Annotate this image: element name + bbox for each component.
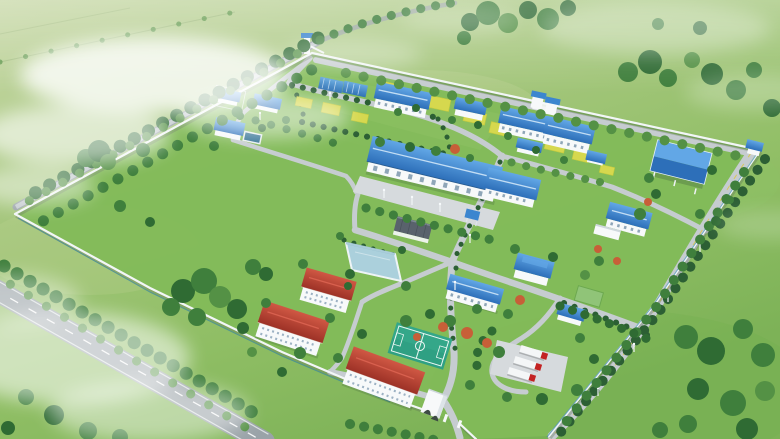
- aerial-render: [0, 0, 780, 439]
- campus-scene: [0, 0, 780, 439]
- top-haze: [0, 0, 780, 95]
